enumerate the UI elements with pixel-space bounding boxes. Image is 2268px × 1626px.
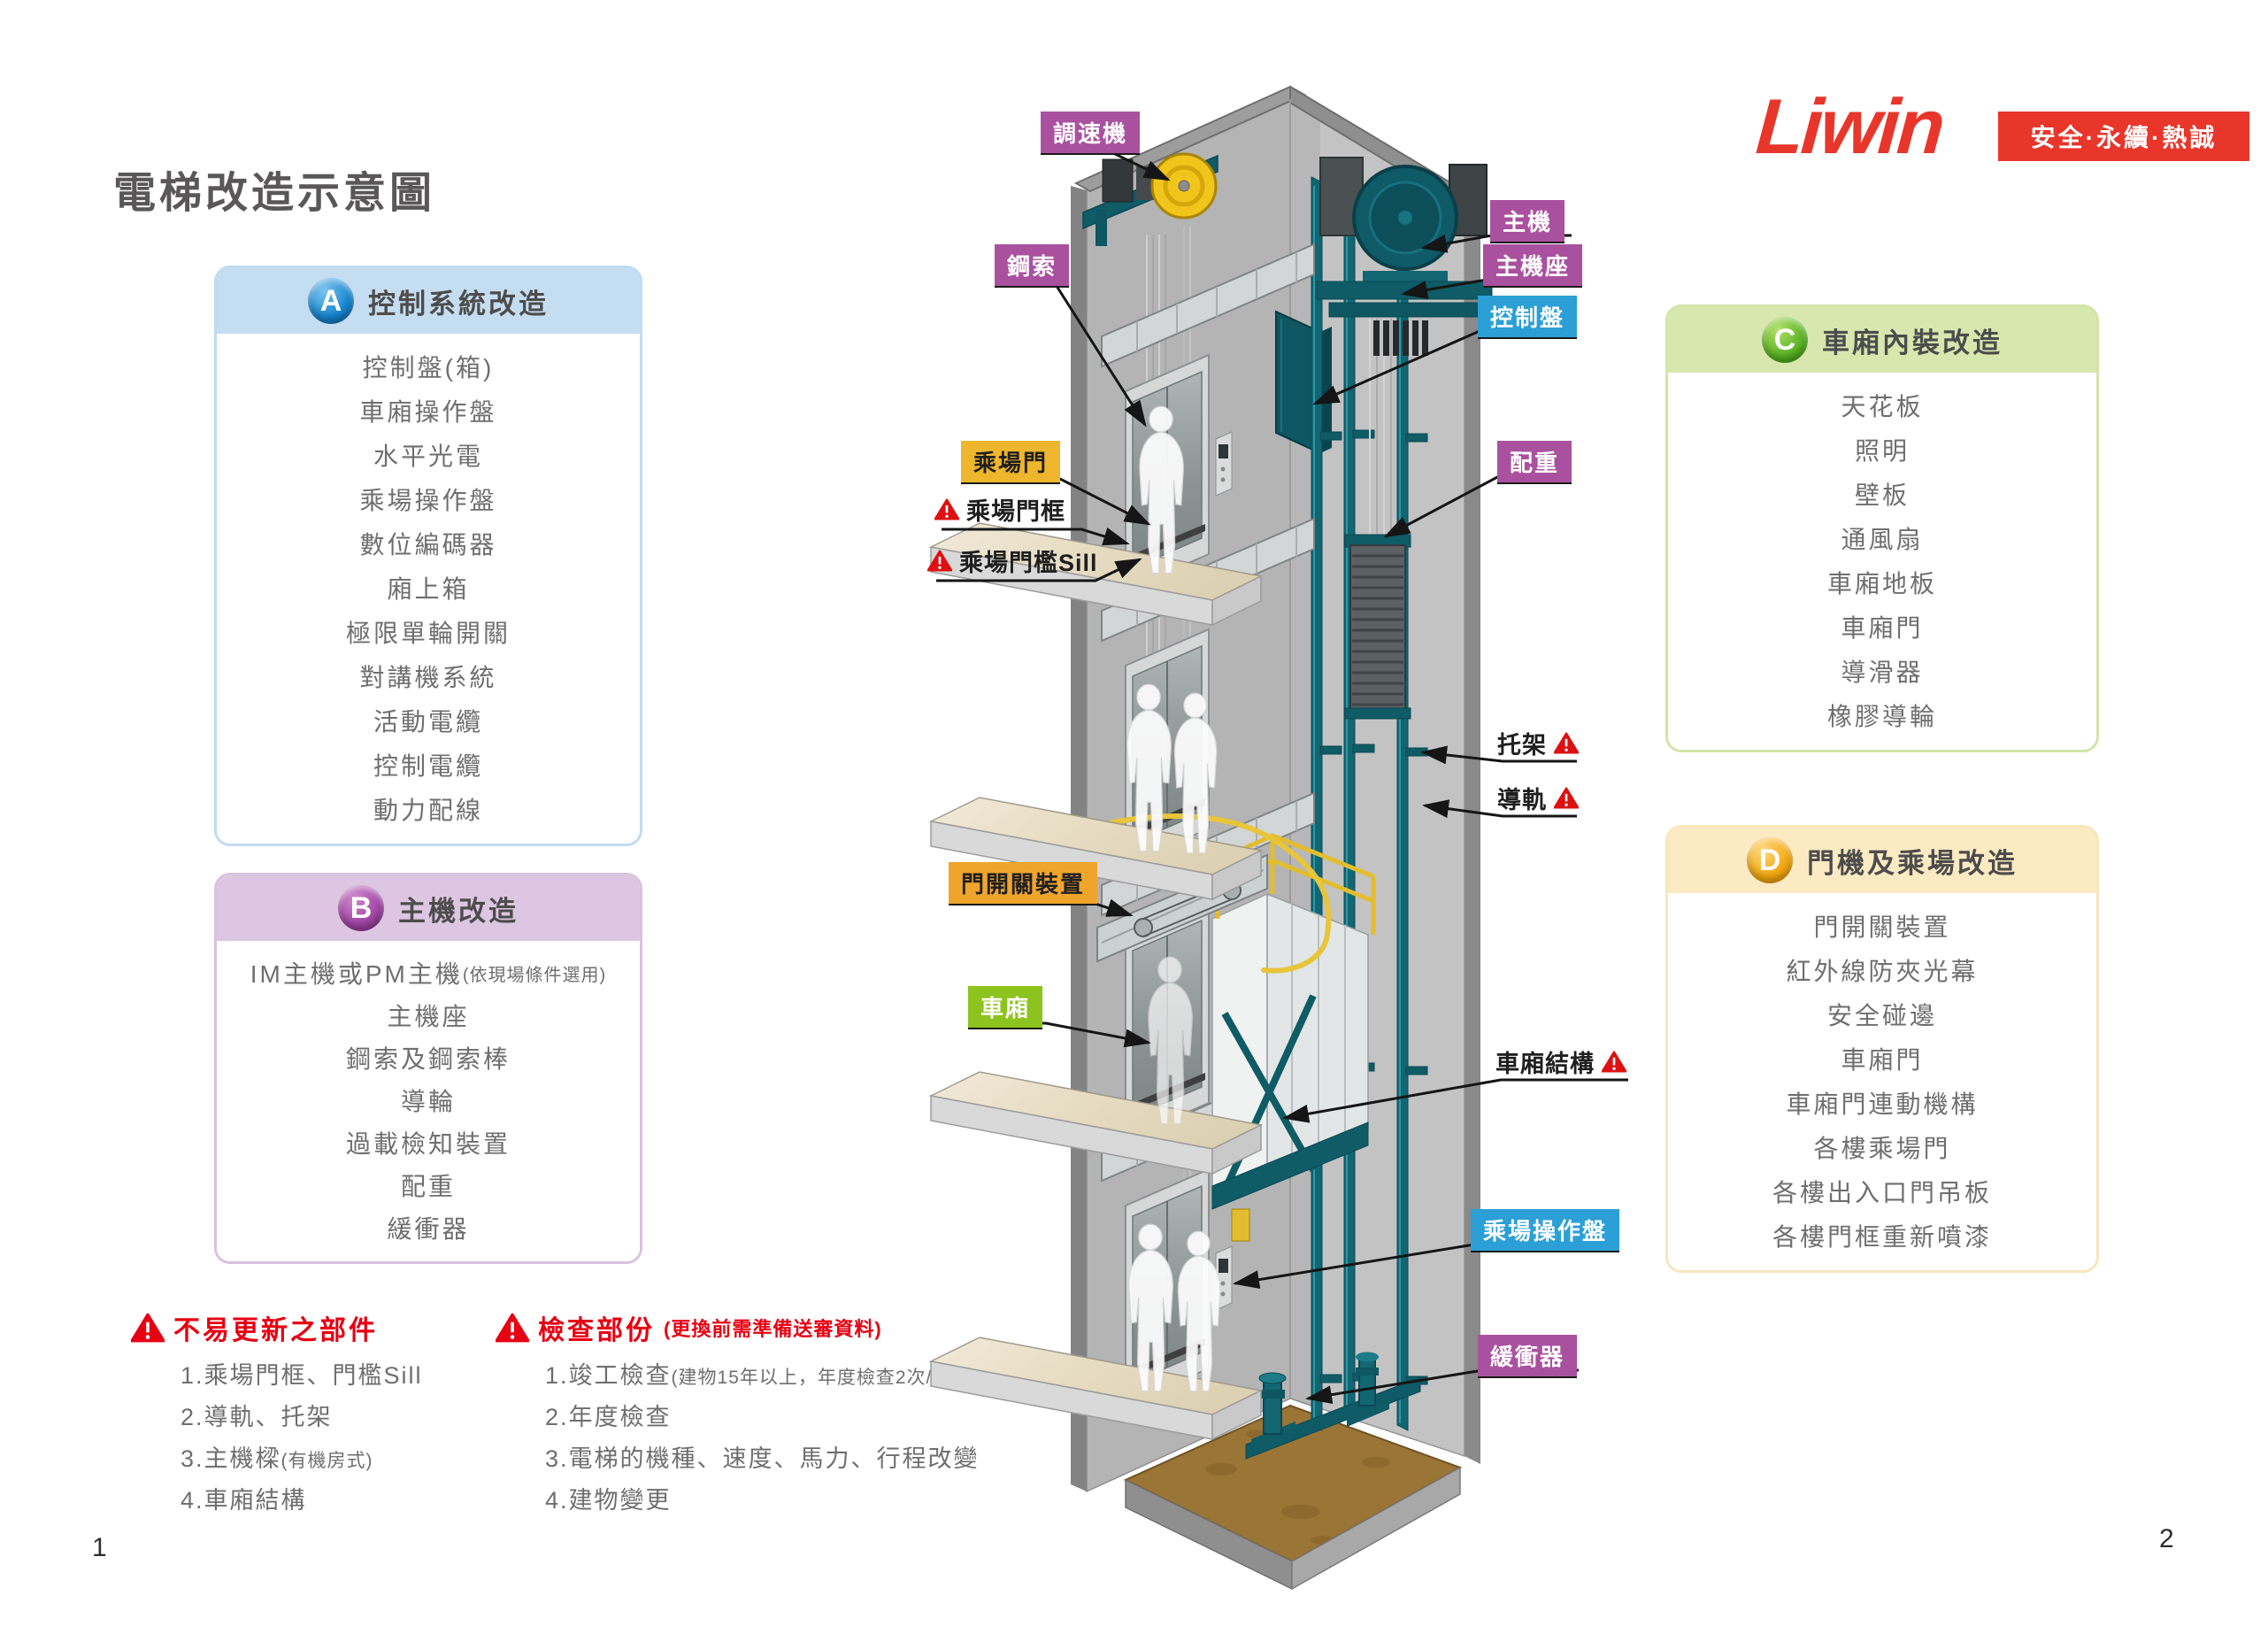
warning-item: 2.導軌、托架 xyxy=(181,1398,423,1439)
label-text: 導軌 xyxy=(1497,781,1547,815)
list-item: 導滑器 xyxy=(1668,649,2096,693)
item-note: (有機房式) xyxy=(281,1451,373,1471)
label-landing-door-frame: 乘場門框 xyxy=(934,492,1065,527)
warning-item: 3.主機樑(有機房式) xyxy=(181,1439,423,1481)
panel-machine: B 主機改造 IM主機或PM主機(依現場條件選用) 主機座 鋼索及鋼索棒 導輪 … xyxy=(214,873,642,1264)
label-car: 車廂 xyxy=(968,986,1042,1029)
page-title: 電梯改造示意圖 xyxy=(113,158,435,220)
warning-inspection: 檢查部份 (更換前需準備送審資料) 1.竣工檢查(建物15年以上，年度檢查2次/… xyxy=(496,1308,980,1522)
label-text: 乘場門框 xyxy=(966,492,1065,527)
item-main: 2.導軌、托架 xyxy=(181,1404,333,1430)
item-main: 導輪 xyxy=(401,1083,456,1118)
item-note: (依現場條件選用) xyxy=(463,960,606,986)
label-landing-door: 乘場門 xyxy=(961,441,1060,484)
list-item: 門開關裝置 xyxy=(1668,904,2096,948)
label-text: 控制盤 xyxy=(1490,300,1565,333)
list-item: 主機座 xyxy=(217,994,640,1036)
badge-c: C xyxy=(1762,317,1808,363)
poster-page: 電梯改造示意圖 Liwin 安全·永續·熱誠 A 控制系統改造 控制盤(箱) 車… xyxy=(0,0,2268,1626)
item-note: (建物15年以上，年度檢查2次/年) xyxy=(672,1368,959,1388)
panel-d-title: 門機及乘場改造 xyxy=(1807,841,2018,881)
warning-item: 2.年度檢查 xyxy=(545,1398,980,1439)
label-text: 主機 xyxy=(1503,204,1552,237)
list-item: 過載檢知裝置 xyxy=(217,1121,640,1164)
warning-subtitle: (更換前需準備送審資料) xyxy=(664,1314,882,1342)
warning-title: 不易更新之部件 xyxy=(173,1308,378,1347)
item-main: 4.建物變更 xyxy=(545,1487,672,1514)
label-control-panel: 控制盤 xyxy=(1478,296,1577,339)
label-text: 配重 xyxy=(1510,445,1559,478)
list-item: 車廂操作盤 xyxy=(217,389,640,433)
list-item: 橡膠導輪 xyxy=(1668,693,2096,737)
label-text: 托架 xyxy=(1497,726,1547,760)
label-machine-base: 主機座 xyxy=(1483,244,1582,288)
panel-b-header: B 主機改造 xyxy=(217,875,640,941)
label-text: 調速機 xyxy=(1053,116,1127,149)
warning-item: 4.建物變更 xyxy=(545,1481,980,1522)
badge-b: B xyxy=(338,885,384,931)
warning-icon xyxy=(1554,732,1579,754)
list-item: 各樓門框重新噴漆 xyxy=(1668,1214,2096,1258)
list-item: 動力配線 xyxy=(217,787,640,831)
item-main: 3.主機樑 xyxy=(181,1445,281,1472)
item-main: 鋼索及鋼索棒 xyxy=(346,1040,511,1075)
list-item: 控制電纜 xyxy=(217,743,640,787)
item-main: 3.電梯的機種、速度、馬力、行程改變 xyxy=(545,1445,980,1472)
warning-title: 檢查部份 xyxy=(538,1308,655,1347)
list-item: 數位編碼器 xyxy=(217,521,640,566)
label-machine: 主機 xyxy=(1490,200,1565,243)
warning-header: 檢查部份 (更換前需準備送審資料) xyxy=(496,1308,980,1347)
panel-c-title: 車廂內裝改造 xyxy=(1822,320,2003,360)
panel-a-body: 控制盤(箱) 車廂操作盤 水平光電 乘場操作盤 數位編碼器 廂上箱 極限單輪開關… xyxy=(217,334,640,844)
item-main: IM主機或PM主機 xyxy=(250,955,463,990)
list-item: 車廂門連動機構 xyxy=(1668,1081,2096,1125)
panel-control-system: A 控制系統改造 控制盤(箱) 車廂操作盤 水平光電 乘場操作盤 數位編碼器 廂… xyxy=(214,266,642,846)
label-text: 主機座 xyxy=(1495,249,1570,281)
warning-icon xyxy=(496,1313,529,1343)
list-item: 照明 xyxy=(1668,428,2096,472)
label-rope: 鋼索 xyxy=(995,244,1069,288)
list-item: 對講機系統 xyxy=(217,654,640,698)
warning-icon xyxy=(1554,787,1579,809)
warning-item: 4.車廂結構 xyxy=(181,1481,423,1522)
warning-items: 1.竣工檢查(建物15年以上，年度檢查2次/年) 2.年度檢查 3.電梯的機種、… xyxy=(545,1356,980,1522)
list-item: 導輪 xyxy=(217,1079,640,1121)
panel-c-body: 天花板 照明 壁板 通風扇 車廂地板 車廂門 導滑器 橡膠導輪 xyxy=(1668,373,2096,750)
page-number-right: 2 xyxy=(2159,1524,2174,1554)
label-text: 鋼索 xyxy=(1007,249,1057,281)
list-item: 各樓出入口門吊板 xyxy=(1668,1169,2096,1214)
panel-d-header: D 門機及乘場改造 xyxy=(1668,828,2096,893)
warning-icon xyxy=(927,550,952,572)
item-main: 4.車廂結構 xyxy=(181,1487,307,1514)
warning-item: 3.電梯的機種、速度、馬力、行程改變 xyxy=(545,1439,980,1481)
panel-c-header: C 車廂內裝改造 xyxy=(1668,307,2096,373)
label-bracket: 托架 xyxy=(1497,726,1579,760)
list-item: 緩衝器 xyxy=(217,1206,640,1249)
panel-a-header: A 控制系統改造 xyxy=(217,268,640,334)
label-car-structure: 車廂結構 xyxy=(1495,1044,1626,1079)
item-main: 緩衝器 xyxy=(387,1210,469,1245)
label-text: 乘場門 xyxy=(973,445,1048,478)
label-text: 乘場門檻Sill xyxy=(959,543,1098,578)
list-item: 廂上箱 xyxy=(217,566,640,610)
list-item: 通風扇 xyxy=(1668,516,2096,560)
label-governor: 調速機 xyxy=(1041,112,1140,155)
liwin-logo: Liwin xyxy=(1753,81,1945,172)
brand-tagline: 安全·永續·熱誠 xyxy=(1998,112,2249,161)
panel-door-landing: D 門機及乘場改造 門開關裝置 紅外線防夾光幕 安全碰邊 車廂門 車廂門連動機構… xyxy=(1665,825,2099,1273)
list-item: 乘場操作盤 xyxy=(217,477,640,521)
item-main: 2.年度檢查 xyxy=(545,1404,672,1430)
label-text: 緩衝器 xyxy=(1490,1339,1565,1372)
label-text: 乘場操作盤 xyxy=(1483,1214,1607,1246)
list-item: 配重 xyxy=(217,1164,640,1206)
panel-b-body: IM主機或PM主機(依現場條件選用) 主機座 鋼索及鋼索棒 導輪 過載檢知裝置 … xyxy=(217,941,640,1261)
list-item: IM主機或PM主機(依現場條件選用) xyxy=(217,952,640,994)
warning-header: 不易更新之部件 xyxy=(131,1308,423,1347)
page-number-left: 1 xyxy=(92,1533,107,1563)
list-item: 活動電纜 xyxy=(217,698,640,743)
warning-icon xyxy=(1602,1051,1626,1073)
item-main: 1.竣工檢查 xyxy=(545,1362,672,1389)
badge-a: A xyxy=(308,278,354,324)
label-buffer: 緩衝器 xyxy=(1478,1335,1577,1378)
list-item: 車廂地板 xyxy=(1668,560,2096,605)
list-item: 水平光電 xyxy=(217,433,640,477)
label-counterweight: 配重 xyxy=(1497,441,1572,484)
list-item: 控制盤(箱) xyxy=(217,344,640,389)
label-text: 車廂結構 xyxy=(1495,1044,1595,1079)
list-item: 車廂門 xyxy=(1668,1036,2096,1081)
list-item: 各樓乘場門 xyxy=(1668,1125,2096,1169)
item-main: 過載檢知裝置 xyxy=(346,1125,511,1160)
warning-icon xyxy=(934,498,959,520)
list-item: 壁板 xyxy=(1668,472,2096,516)
label-text: 車廂 xyxy=(980,990,1030,1023)
panel-d-body: 門開關裝置 紅外線防夾光幕 安全碰邊 車廂門 車廂門連動機構 各樓乘場門 各樓出… xyxy=(1668,893,2096,1270)
label-door-operator: 門開關裝置 xyxy=(949,862,1097,905)
list-item: 極限單輪開關 xyxy=(217,610,640,654)
warning-items: 1.乘場門框、門檻Sill 2.導軌、托架 3.主機樑(有機房式) 4.車廂結構 xyxy=(181,1356,423,1522)
badge-d: D xyxy=(1747,837,1793,883)
list-item: 天花板 xyxy=(1668,383,2096,428)
label-hall-panel: 乘場操作盤 xyxy=(1471,1209,1619,1252)
list-item: 紅外線防夾光幕 xyxy=(1668,948,2096,992)
warning-icon xyxy=(131,1313,165,1343)
counterweight-box xyxy=(1345,535,1411,719)
warning-item: 1.乘場門框、門檻Sill xyxy=(181,1356,423,1398)
panel-a-title: 控制系統改造 xyxy=(368,281,549,321)
warning-hard-to-replace: 不易更新之部件 1.乘場門框、門檻Sill 2.導軌、托架 3.主機樑(有機房式… xyxy=(131,1308,423,1522)
item-main: 主機座 xyxy=(387,998,469,1033)
list-item: 安全碰邊 xyxy=(1668,992,2096,1036)
item-main: 1.乘場門框、門檻Sill xyxy=(181,1362,423,1389)
panel-b-title: 主機改造 xyxy=(398,889,519,929)
label-landing-sill: 乘場門檻Sill xyxy=(927,543,1098,578)
label-text: 門開關裝置 xyxy=(961,867,1085,899)
label-guide-rail: 導軌 xyxy=(1497,781,1579,815)
item-main: 配重 xyxy=(401,1167,456,1203)
warning-item: 1.竣工檢查(建物15年以上，年度檢查2次/年) xyxy=(545,1356,980,1398)
panel-cab-interior: C 車廂內裝改造 天花板 照明 壁板 通風扇 車廂地板 車廂門 導滑器 橡膠導輪 xyxy=(1665,304,2099,752)
list-item: 鋼索及鋼索棒 xyxy=(217,1036,640,1079)
list-item: 車廂門 xyxy=(1668,605,2096,649)
